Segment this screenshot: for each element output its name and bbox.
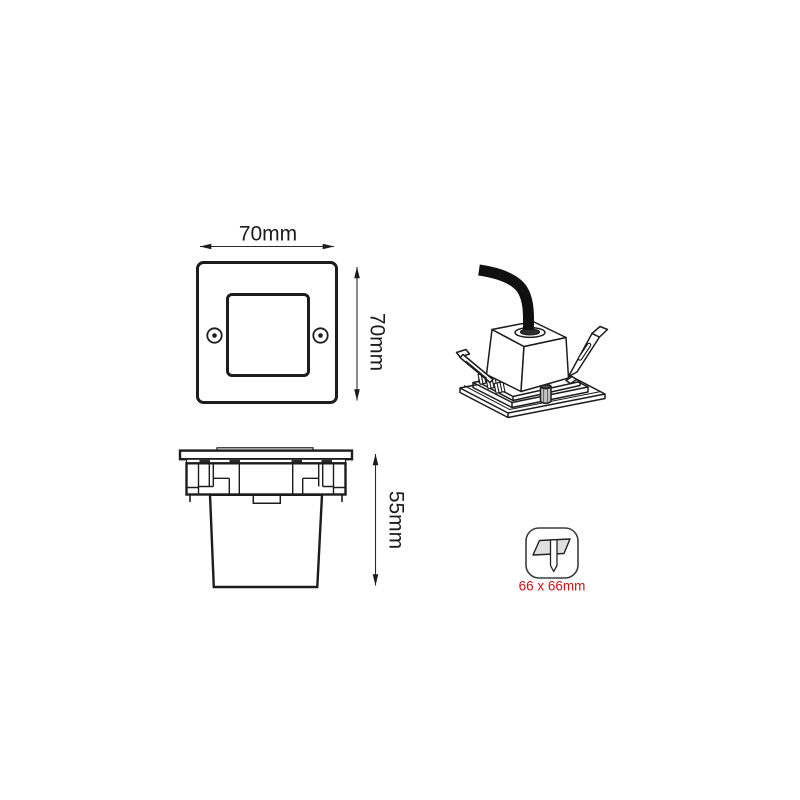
perspective-view-drawing — [457, 270, 608, 418]
front-width-label: 70mm — [239, 223, 297, 244]
front-view-drawing — [198, 263, 337, 403]
side-lower-body — [210, 495, 322, 587]
cutout-size-label: 66 x 66mm — [519, 579, 586, 593]
side-depth-label: 55mm — [385, 491, 406, 549]
front-height-label: 70mm — [367, 312, 388, 370]
side-upper-body — [187, 463, 346, 494]
front-lens-window — [228, 295, 309, 376]
side-view-drawing — [180, 448, 352, 587]
power-cable — [479, 270, 529, 330]
spring-clip-right — [566, 327, 608, 384]
front-screw-left-center — [212, 333, 217, 338]
front-screw-right-center — [318, 333, 323, 338]
line-art-canvas — [0, 0, 800, 800]
cutout-flap — [551, 540, 558, 572]
locking-screw — [540, 384, 551, 403]
side-flange — [180, 451, 352, 460]
technical-drawing-page: 70mm 70mm 55mm 66 x 66mm — [0, 0, 800, 800]
cutout-icon — [526, 528, 578, 578]
